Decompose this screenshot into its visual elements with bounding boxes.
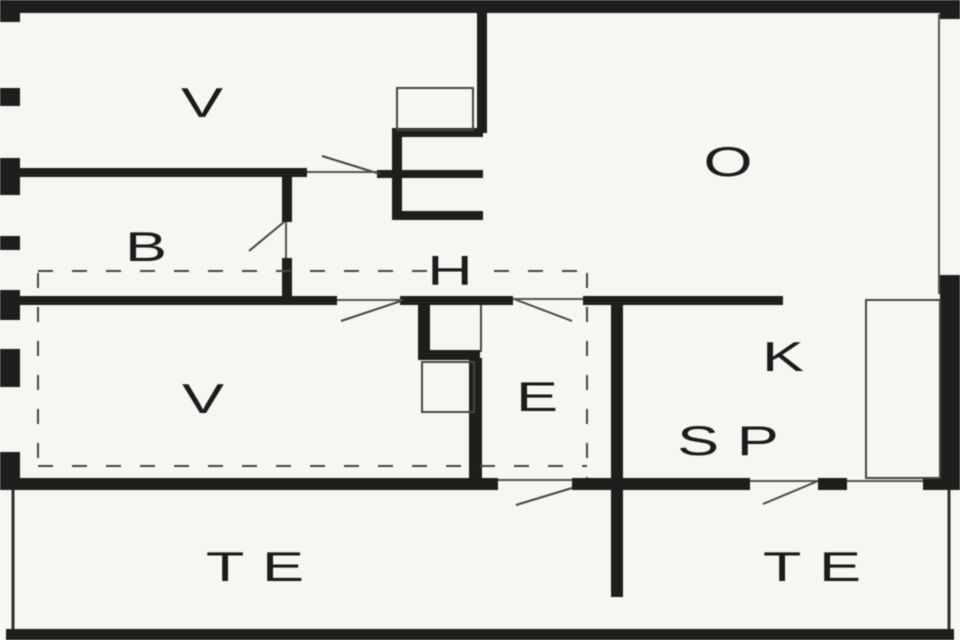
wall-outer-bottom-segment (818, 478, 847, 490)
wall-e-left (469, 358, 482, 478)
room-label-b: B (107, 226, 184, 268)
wall-outer-right (940, 275, 960, 490)
wall-middle-left (20, 296, 337, 305)
wall-middle-center (400, 296, 513, 305)
wall-outer-bottom-segment (923, 478, 960, 490)
wall-outer-left-segment (0, 349, 20, 387)
wall-v-b-divider (20, 168, 307, 177)
door-swing-terrace-right (763, 481, 818, 504)
room-label-e: E (498, 376, 575, 418)
floor-plan: V O B H V E K SP TE TE (0, 0, 960, 640)
door-swing-hall-e (514, 299, 572, 321)
room-label-k: K (744, 336, 821, 378)
chimney-flue-wall (477, 13, 487, 133)
chimney-box-divider (377, 170, 483, 178)
wall-outer-bottom-segment (0, 478, 498, 490)
room-label-h: H (410, 250, 491, 292)
wall-outer-left-segment (0, 88, 20, 106)
room-label-sp: SP (660, 420, 797, 462)
chimney-hearth-outline (397, 88, 473, 130)
room-label-v-lower: V (164, 378, 241, 420)
kitchen-cupboard-outline (866, 300, 940, 478)
door-swing-lower-v (341, 301, 401, 321)
room-label-v-top: V (163, 82, 240, 124)
wall-k-left-and-terrace-divider (611, 303, 623, 597)
wall-b-door-upper (282, 177, 292, 222)
chimney-box-bottom (392, 211, 483, 220)
wall-outer-top (0, 0, 960, 13)
door-swing-v-room (322, 156, 380, 174)
wall-outer-right-top-stub (940, 0, 960, 19)
room-label-te-right: TE (745, 546, 878, 588)
door-swing-front-door (516, 488, 572, 505)
door-swing-b-room (249, 222, 284, 251)
room-label-te-left: TE (188, 546, 321, 588)
wall-outer-left-segment (0, 236, 20, 250)
room-label-o: O (686, 141, 770, 183)
closet-box-outline (422, 362, 474, 412)
closet-wall-vertical (418, 303, 430, 355)
wall-outer-left-segment (0, 0, 20, 22)
terrace-bottom-edge (6, 629, 954, 640)
chimney-box-top (392, 128, 483, 137)
wall-outer-bottom-segment (572, 478, 750, 490)
wall-outer-left-segment (0, 158, 20, 195)
wall-outer-left-segment (0, 290, 20, 320)
